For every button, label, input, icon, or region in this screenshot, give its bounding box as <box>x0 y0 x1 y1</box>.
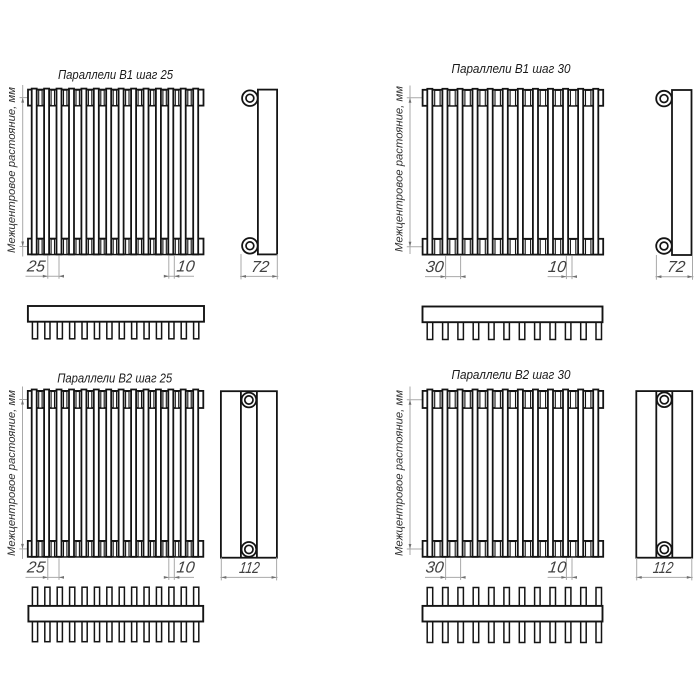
svg-text:Параллели В1 шаг 30: Параллели В1 шаг 30 <box>452 61 572 76</box>
svg-text:Межцентровое растояние, мм: Межцентровое растояние, мм <box>6 87 18 253</box>
svg-text:Межцентровое растояние, мм: Межцентровое растояние, мм <box>6 390 18 556</box>
svg-text:10: 10 <box>547 258 567 276</box>
svg-text:112: 112 <box>238 559 261 577</box>
svg-text:30: 30 <box>425 559 445 577</box>
svg-text:Межцентровое растояние, мм: Межцентровое растояние, мм <box>394 390 406 556</box>
svg-text:72: 72 <box>666 258 686 276</box>
svg-text:30: 30 <box>425 258 445 276</box>
svg-text:10: 10 <box>176 559 196 577</box>
svg-text:25: 25 <box>25 559 46 577</box>
svg-text:10: 10 <box>547 559 567 577</box>
svg-text:Параллели В2 шаг 30: Параллели В2 шаг 30 <box>452 367 572 382</box>
svg-text:72: 72 <box>250 258 270 276</box>
svg-text:112: 112 <box>652 559 675 577</box>
svg-text:Параллели В2 шаг 25: Параллели В2 шаг 25 <box>57 370 173 385</box>
svg-text:25: 25 <box>25 258 46 276</box>
svg-text:Межцентровое растояние, мм: Межцентровое растояние, мм <box>394 86 406 252</box>
svg-text:Параллели В1 шаг 25: Параллели В1 шаг 25 <box>58 67 174 82</box>
svg-text:10: 10 <box>176 258 196 276</box>
